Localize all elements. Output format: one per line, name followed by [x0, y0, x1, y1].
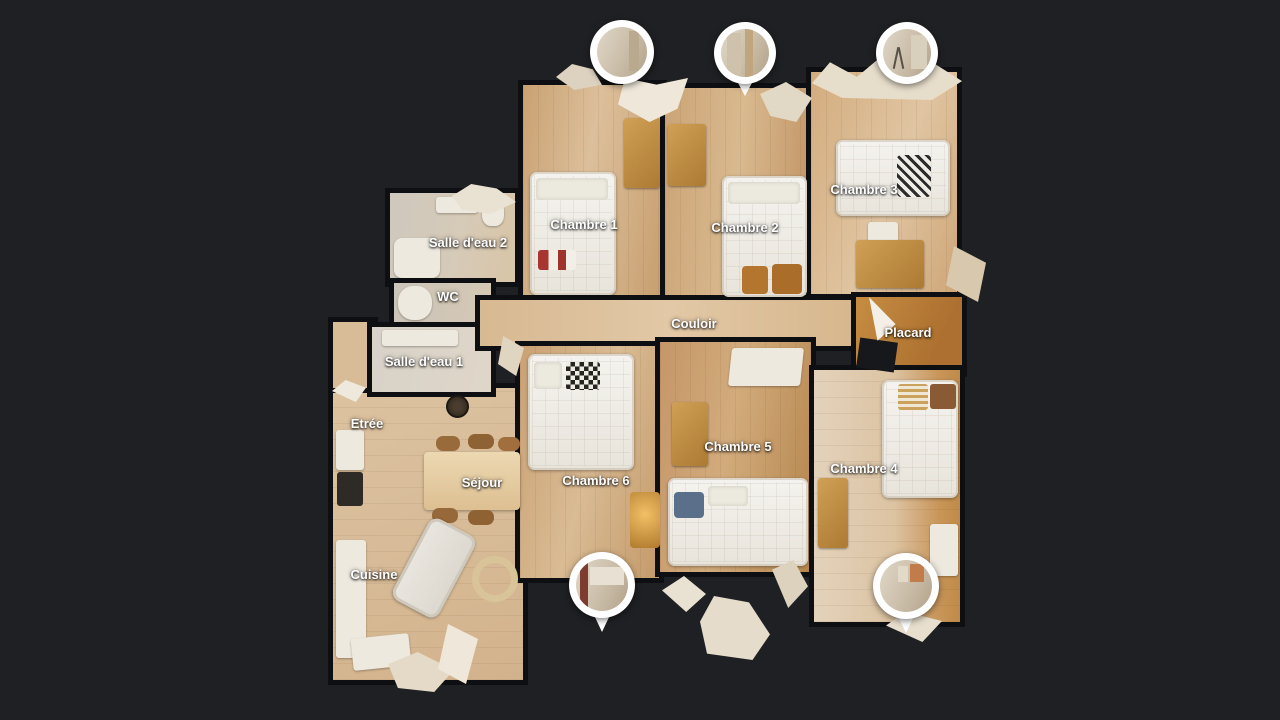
bed: [836, 140, 950, 216]
vanity-counter: [382, 330, 458, 346]
chair: [468, 434, 494, 449]
pillow: [534, 362, 562, 389]
scan-artifact: [662, 576, 706, 612]
desk: [856, 240, 924, 288]
patterned-pillow: [897, 155, 931, 197]
wardrobe: [728, 348, 804, 386]
room-couloir[interactable]: [480, 300, 862, 346]
checkered-pillow: [566, 362, 600, 390]
rattan-chair: [472, 556, 518, 602]
toilet: [398, 286, 432, 320]
pano-thumbnail: [597, 27, 647, 77]
appliance: [337, 472, 363, 506]
brown-pillow: [930, 384, 956, 409]
blue-pillow: [674, 492, 704, 518]
red-blanket: [538, 250, 576, 270]
round-stool: [446, 395, 469, 418]
lamp-table: [630, 492, 660, 548]
pano-thumbnail: [883, 29, 931, 77]
desk: [624, 118, 660, 188]
chair: [498, 437, 520, 451]
chair: [868, 222, 898, 242]
pillow: [728, 182, 800, 204]
scan-hole: [856, 338, 898, 373]
pano-marker-bottom-right[interactable]: [873, 553, 939, 619]
patterned-pillow: [898, 384, 928, 410]
pano-thumbnail: [721, 29, 769, 77]
pano-marker-top-right[interactable]: [876, 22, 938, 84]
pano-thumbnail: [576, 559, 628, 611]
desk: [668, 124, 706, 186]
dresser: [672, 402, 708, 466]
chair: [772, 264, 802, 294]
pillow: [708, 486, 748, 506]
pillow: [536, 178, 608, 200]
floorplan-viewport: Salle d'eau 2 WC Salle d'eau 1 Etrée Séj…: [0, 0, 1280, 720]
chair: [468, 510, 494, 525]
chair: [742, 266, 768, 294]
pano-marker-bottom-left[interactable]: [569, 552, 635, 618]
dining-table: [424, 452, 520, 510]
pano-thumbnail: [880, 560, 932, 612]
chair: [436, 436, 460, 451]
bathtub: [394, 238, 440, 278]
scan-artifact: [700, 596, 770, 660]
kitchen-counter: [336, 430, 364, 470]
desk: [818, 478, 848, 548]
room-etree-upper-patch[interactable]: [333, 322, 373, 388]
pano-marker-top-middle[interactable]: [714, 22, 776, 84]
pano-marker-top-left[interactable]: [590, 20, 654, 84]
